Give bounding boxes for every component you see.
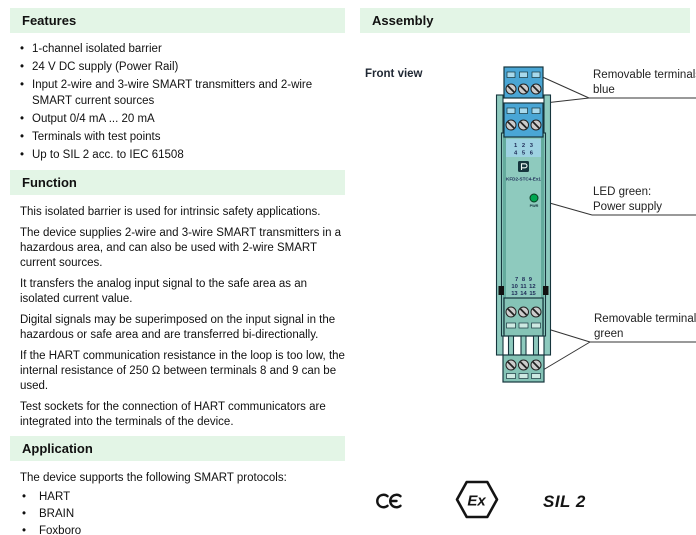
feature-item: Input 2-wire and 3-wire SMART transmitte… (20, 78, 345, 109)
feature-item: 1-channel isolated barrier (20, 42, 345, 58)
protocols-list: HART BRAIN Foxboro (20, 489, 345, 535)
left-column: Features 1-channel isolated barrier 24 V… (10, 8, 345, 535)
ex-mark-icon: Ex (457, 482, 497, 517)
led-label: PWR (530, 204, 539, 208)
callout-removable-terminals-green: Removable terminals green (594, 312, 696, 341)
removable-terminal-block-blue-top (504, 67, 543, 98)
front-view-label: Front view (365, 68, 423, 80)
feature-item: Output 0/4 mA ... 20 mA (20, 112, 345, 128)
function-text: This isolated barrier is used for intrin… (20, 205, 345, 430)
features-section: Features 1-channel isolated barrier 24 V… (10, 8, 345, 163)
assembly-section-header: Assembly (360, 8, 690, 33)
screw-icon (519, 84, 529, 94)
removable-terminal-block-green-bottom (503, 355, 544, 382)
application-intro: The device supports the following SMART … (20, 471, 345, 486)
ce-mark-icon (377, 495, 400, 507)
screw-icon (531, 120, 541, 130)
assembly-title: Assembly (372, 13, 433, 28)
application-title: Application (22, 441, 93, 456)
function-paragraph: Digital signals may be superimposed on t… (20, 313, 345, 343)
sil-rating: SIL 2 (543, 492, 586, 511)
terminal-numbers-bottom-row1: 7 8 9 (515, 277, 533, 283)
callout-removable-terminals-blue: Removable terminals blue (593, 68, 696, 97)
function-paragraph: Test sockets for the connection of HART … (20, 400, 345, 430)
ex-mark-text: Ex (467, 493, 486, 510)
feature-item: Up to SIL 2 acc. to IEC 61508 (20, 148, 345, 164)
terminal-numbers-top-row1: 1 2 3 (514, 143, 534, 149)
datasheet-page: Features 1-channel isolated barrier 24 V… (0, 0, 696, 535)
led-green-indicator (530, 194, 538, 202)
assembly-figure: 1 2 3 4 5 6 KFD2-STC4-Ex1 PWR 7 8 9 10 1… (360, 40, 696, 535)
function-paragraph: It transfers the analog input signal to … (20, 277, 345, 307)
terminal-block-green-attached (504, 298, 543, 336)
function-section-header: Function (10, 170, 345, 195)
features-title: Features (22, 13, 76, 28)
application-section-header: Application (10, 436, 345, 461)
screw-icon (519, 307, 529, 317)
screw-icon (531, 84, 541, 94)
assembly-diagram: 1 2 3 4 5 6 KFD2-STC4-Ex1 PWR 7 8 9 10 1… (360, 40, 696, 535)
terminal-numbers-bottom-row3: 13 14 15 (511, 291, 536, 297)
function-paragraph: The device supplies 2-wire and 3-wire SM… (20, 226, 345, 271)
screw-icon (531, 360, 541, 370)
terminal-numbers-bottom-row2: 10 11 12 (511, 284, 535, 290)
rail-clip (543, 286, 549, 295)
feature-item: 24 V DC supply (Power Rail) (20, 60, 345, 76)
power-led: PWR (530, 194, 539, 208)
protocol-item: BRAIN (20, 506, 345, 523)
screw-icon (519, 120, 529, 130)
screw-icon (531, 307, 541, 317)
pepperl-fuchs-logo-icon (518, 161, 529, 172)
terminal-numbers-top-row2: 4 5 6 (514, 151, 534, 157)
screw-icon (506, 360, 516, 370)
device-model-label: KFD2-STC4-Ex1 (506, 177, 541, 182)
features-section-header: Features (10, 8, 345, 33)
screw-icon (506, 120, 516, 130)
function-paragraph: If the HART communication resistance in … (20, 349, 345, 394)
terminal-block-blue-attached (504, 103, 543, 137)
screw-icon (519, 360, 529, 370)
feature-item: Terminals with test points (20, 130, 345, 146)
connector-legs (509, 336, 539, 355)
screw-icon (506, 307, 516, 317)
screw-icon (506, 84, 516, 94)
function-title: Function (22, 175, 77, 190)
application-section: Application The device supports the foll… (10, 436, 345, 535)
rail-clip (499, 286, 505, 295)
right-column: Assembly (360, 8, 696, 33)
function-paragraph: This isolated barrier is used for intrin… (20, 205, 345, 220)
protocol-item: HART (20, 489, 345, 506)
barrier-device: 1 2 3 4 5 6 KFD2-STC4-Ex1 PWR 7 8 9 10 1… (497, 67, 551, 382)
features-list: 1-channel isolated barrier 24 V DC suppl… (20, 42, 345, 163)
protocol-item: Foxboro (20, 523, 345, 535)
callout-led-power-supply: LED green: Power supply (593, 185, 696, 214)
function-section: Function This isolated barrier is used f… (10, 170, 345, 430)
